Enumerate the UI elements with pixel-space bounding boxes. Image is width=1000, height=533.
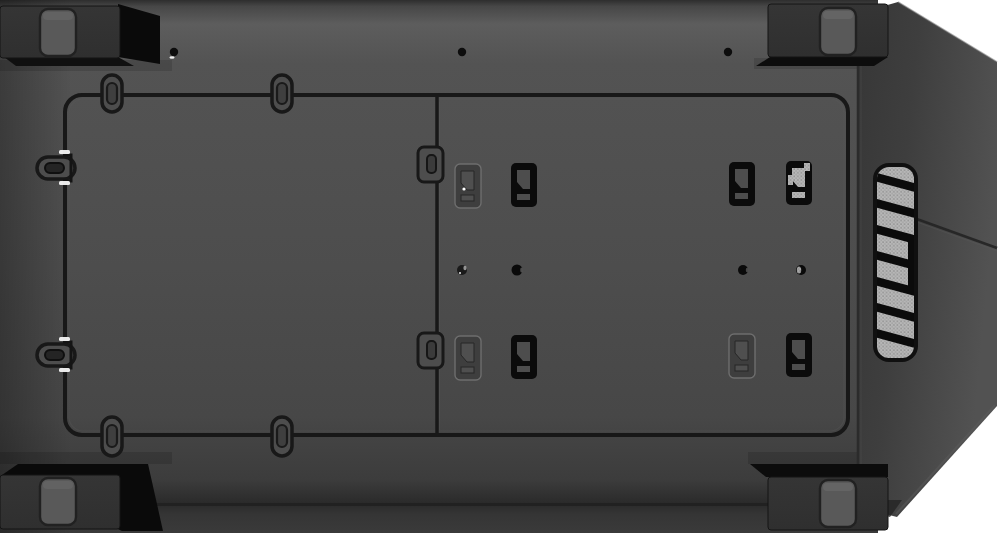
hole-mesh-showthrough: [797, 266, 801, 273]
foot-side-face: [750, 464, 888, 477]
pad-highlight: [823, 483, 853, 491]
tab-slot: [427, 155, 436, 173]
pc-case-bottom-render: [0, 0, 1000, 533]
clip-window: [517, 194, 530, 200]
mounting-clip: [455, 164, 481, 208]
hole-glint: [746, 268, 748, 272]
clip-window: [461, 367, 474, 373]
tab-slot: [427, 341, 436, 359]
mounting-clip: [786, 333, 812, 377]
mounting-clip: [511, 163, 537, 207]
pad-highlight: [823, 11, 853, 19]
pill-slot: [107, 425, 117, 447]
foot-top-left: [0, 4, 160, 66]
latch-slot: [45, 163, 64, 173]
clip-window: [735, 365, 748, 371]
foot-bottom-right: [750, 464, 888, 530]
case-bottom-panel: [0, 0, 896, 533]
hole-glint: [169, 56, 174, 59]
clip-sparkle: [462, 187, 465, 190]
filter-pull-tab[interactable]: [102, 417, 122, 456]
divider-tab: [418, 147, 443, 182]
vent-mesh: [866, 163, 924, 362]
vent-slat-edge: [908, 240, 914, 290]
rivet-glint: [463, 266, 466, 270]
clip-window: [792, 364, 805, 370]
foot-shadow: [0, 452, 172, 464]
screw-hole: [458, 48, 466, 56]
foot-side-face: [756, 57, 888, 66]
clip-window: [517, 366, 530, 372]
clip-mesh-patch: [804, 163, 810, 171]
filter-pull-tab[interactable]: [272, 417, 292, 456]
pad-highlight: [43, 481, 73, 489]
latch-glint: [59, 181, 70, 185]
filter-pull-tab[interactable]: [102, 75, 122, 112]
product-image: [0, 0, 1000, 533]
hole-glint: [520, 267, 523, 272]
filter-pull-tab[interactable]: [272, 75, 292, 112]
mounting-clip: [729, 334, 755, 378]
screw-hole: [170, 48, 178, 56]
mounting-clip: [729, 162, 755, 206]
clip-window: [792, 192, 805, 198]
pill-slot: [277, 425, 287, 447]
rivet-sparkle: [459, 272, 461, 274]
pad-highlight: [43, 12, 73, 20]
latch-glint: [59, 368, 70, 372]
clip-window: [461, 195, 474, 201]
screw-hole: [724, 48, 732, 56]
latch-slot: [45, 350, 64, 360]
latch-glint: [59, 337, 70, 341]
mounting-clip: [455, 336, 481, 380]
clip-mesh-patch: [788, 175, 793, 185]
latch-glint: [59, 150, 70, 154]
mounting-clip: [511, 335, 537, 379]
clip-window: [735, 193, 748, 199]
divider-tab: [418, 333, 443, 368]
mounting-clip-mesh-showthrough: [786, 161, 812, 205]
pill-slot: [107, 83, 117, 104]
foot-bottom-left: [0, 464, 163, 531]
pill-slot: [277, 83, 287, 104]
foot-top-right: [756, 4, 888, 66]
